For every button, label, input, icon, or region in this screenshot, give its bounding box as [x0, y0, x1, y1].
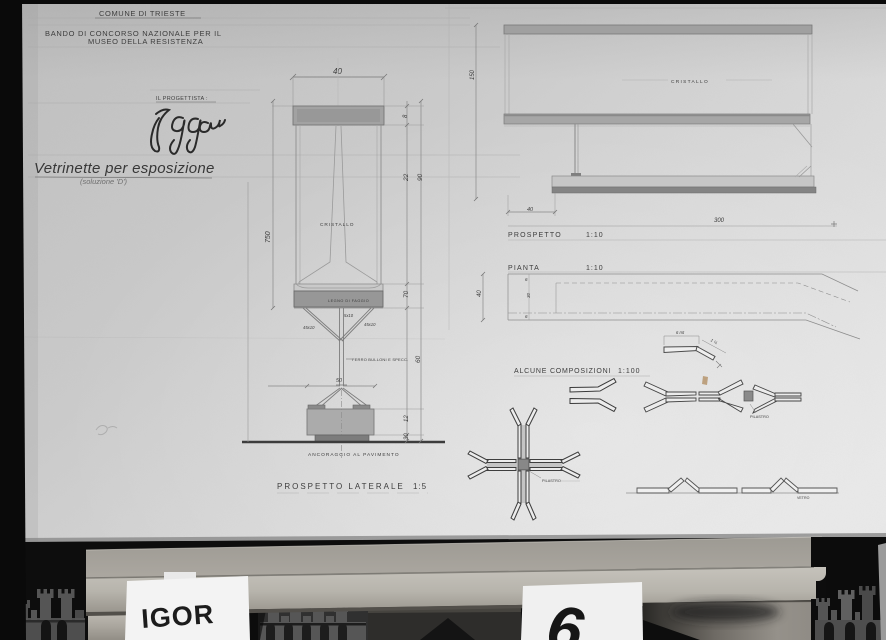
svg-text:50: 50	[336, 378, 343, 384]
svg-text:750: 750	[265, 231, 272, 243]
svg-text:22: 22	[403, 173, 410, 182]
svg-text:Vetrinette per esposizione: Vetrinette per esposizione	[34, 160, 215, 177]
svg-text:45x10: 45x10	[303, 325, 315, 330]
svg-text:CRISTALLO: CRISTALLO	[320, 222, 354, 228]
svg-text:30: 30	[526, 292, 531, 298]
svg-text:LEGNO DI FAGGIO: LEGNO DI FAGGIO	[328, 299, 369, 303]
svg-text:60: 60	[415, 355, 422, 363]
svg-text:30: 30	[404, 433, 410, 440]
svg-text:(soluzione 'D'): (soluzione 'D')	[80, 177, 128, 186]
svg-text:70: 70	[403, 290, 410, 298]
svg-text:COMUNE DI TRIESTE: COMUNE DI TRIESTE	[99, 9, 186, 18]
svg-text:PROSPETTO: PROSPETTO	[508, 232, 562, 239]
svg-text:ANCORAGGIO AL PAVIMENTO: ANCORAGGIO AL PAVIMENTO	[308, 452, 400, 458]
svg-text:150: 150	[470, 69, 476, 80]
svg-text:PROSPETTO LATERALE: PROSPETTO LATERALE	[277, 482, 405, 491]
svg-text:1:5: 1:5	[413, 482, 427, 491]
svg-text:VETRO: VETRO	[797, 496, 810, 500]
svg-text:IL PROGETTISTA :: IL PROGETTISTA :	[156, 96, 208, 102]
svg-text:IGOR: IGOR	[140, 599, 215, 634]
svg-text:1:10: 1:10	[586, 232, 604, 239]
svg-text:1:100: 1:100	[618, 368, 641, 375]
svg-text:5x10: 5x10	[344, 313, 354, 318]
svg-text:12: 12	[404, 415, 410, 422]
svg-text:40: 40	[527, 207, 534, 213]
svg-text:40: 40	[333, 67, 342, 76]
svg-text:90: 90	[417, 173, 424, 181]
svg-text:PIANTA: PIANTA	[508, 265, 540, 272]
svg-text:40: 40	[477, 290, 483, 297]
svg-text:6 mt: 6 mt	[676, 330, 685, 335]
svg-text:1:10: 1:10	[586, 265, 604, 272]
svg-text:45x10: 45x10	[364, 322, 376, 327]
svg-text:PILASTRO: PILASTRO	[542, 479, 561, 483]
svg-text:300: 300	[714, 218, 725, 224]
svg-text:FERRO BULLONI E SPECC.: FERRO BULLONI E SPECC.	[352, 357, 408, 362]
svg-text:PILASTRO: PILASTRO	[750, 415, 769, 419]
svg-text:MUSEO DELLA RESISTENZA: MUSEO DELLA RESISTENZA	[88, 37, 203, 46]
svg-text:ALCUNE COMPOSIZIONI: ALCUNE COMPOSIZIONI	[514, 368, 611, 375]
svg-text:CRISTALLO: CRISTALLO	[671, 79, 709, 85]
